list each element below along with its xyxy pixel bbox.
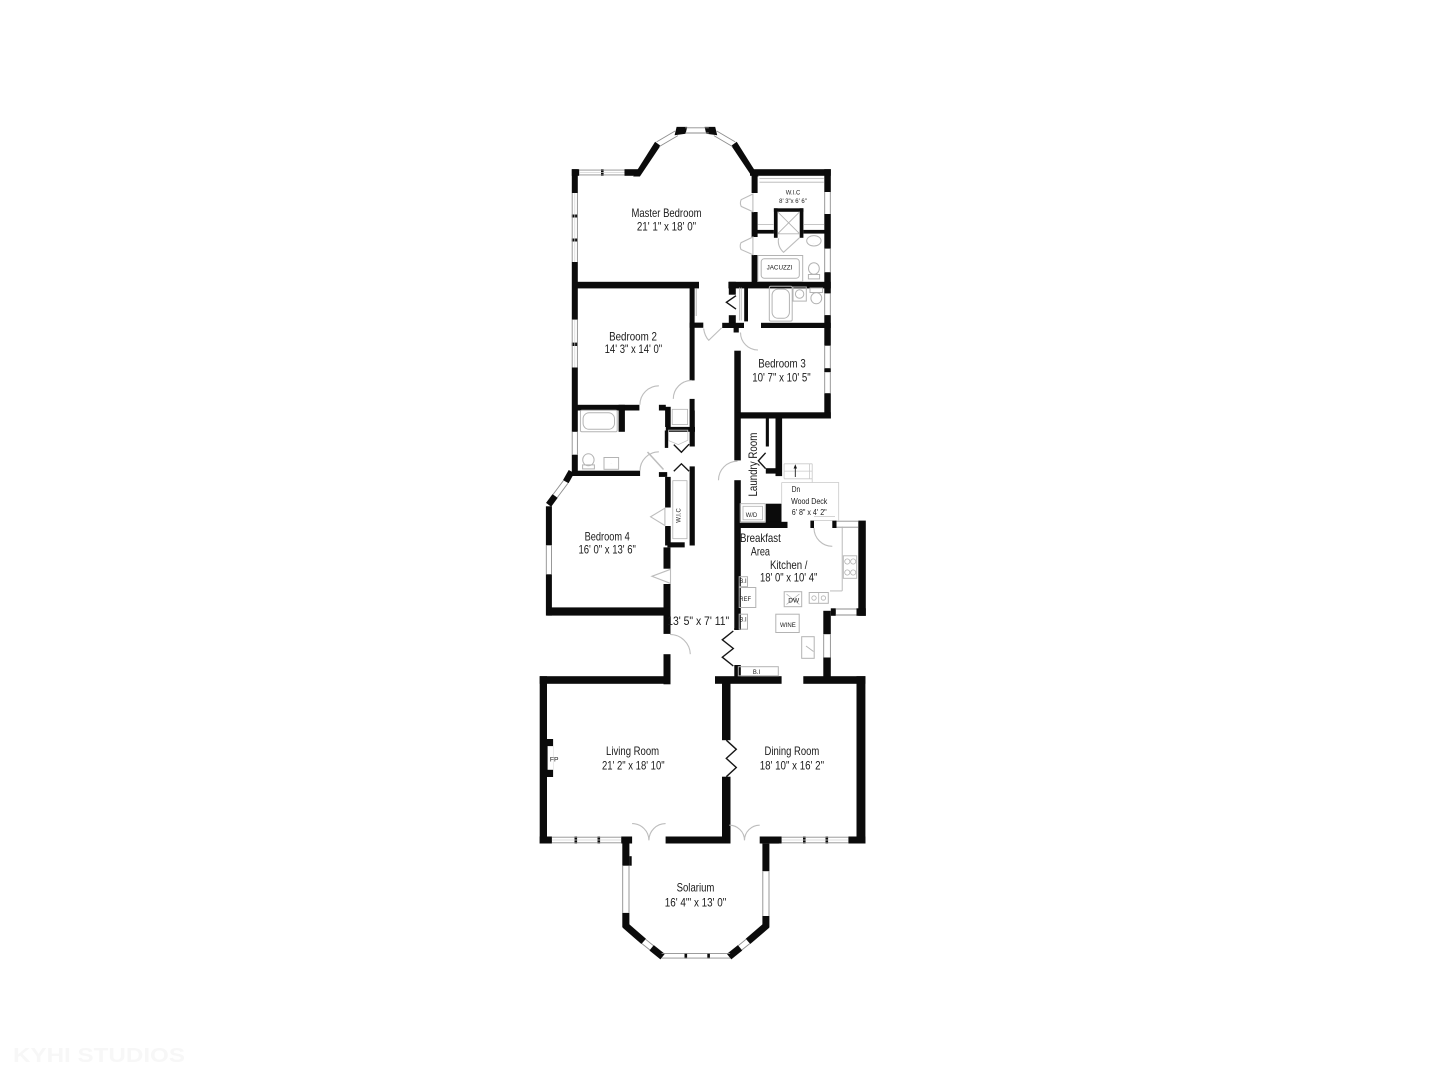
svg-text:10' 7" x 10' 5": 10' 7" x 10' 5" bbox=[752, 371, 811, 384]
svg-text:DW: DW bbox=[788, 598, 799, 605]
svg-text:B.I: B.I bbox=[739, 617, 746, 624]
svg-text:W/D: W/D bbox=[746, 512, 757, 519]
svg-text:14' 3" x 14' 0": 14' 3" x 14' 0" bbox=[605, 343, 663, 356]
svg-text:Dn: Dn bbox=[792, 484, 801, 494]
svg-text:18' 10" x 16' 2": 18' 10" x 16' 2" bbox=[760, 759, 824, 772]
svg-text:Area: Area bbox=[751, 546, 771, 559]
svg-text:Laundry Room: Laundry Room bbox=[747, 433, 760, 497]
svg-text:16' 4"' x 13' 0": 16' 4"' x 13' 0" bbox=[665, 896, 726, 909]
svg-text:FP: FP bbox=[550, 756, 559, 763]
svg-text:13' 5" x 7' 11": 13' 5" x 7' 11" bbox=[667, 615, 729, 628]
svg-text:Living Room: Living Room bbox=[606, 745, 659, 758]
svg-text:KYHI STUDIOS: KYHI STUDIOS bbox=[13, 1045, 185, 1067]
svg-text:B.I: B.I bbox=[753, 669, 760, 676]
svg-text:JACUZZI: JACUZZI bbox=[767, 264, 793, 271]
svg-text:Wood Deck: Wood Deck bbox=[791, 496, 828, 506]
svg-text:21' 1" x 18' 0": 21' 1" x 18' 0" bbox=[637, 221, 696, 234]
svg-text:Bedroom 2: Bedroom 2 bbox=[609, 330, 657, 343]
svg-text:Solarium: Solarium bbox=[677, 882, 715, 895]
svg-text:REF: REF bbox=[739, 596, 751, 603]
svg-text:Bedroom 4: Bedroom 4 bbox=[585, 530, 631, 543]
svg-text:16' 0" x 13' 6": 16' 0" x 13' 6" bbox=[578, 544, 636, 557]
svg-text:6' 8" x 4' 2": 6' 8" x 4' 2" bbox=[792, 507, 827, 517]
svg-text:W.I.C: W.I.C bbox=[786, 189, 801, 196]
svg-text:B.I: B.I bbox=[739, 578, 746, 585]
svg-text:18' 0" x 10' 4": 18' 0" x 10' 4" bbox=[760, 572, 818, 585]
svg-text:WINE: WINE bbox=[780, 622, 796, 629]
svg-text:Kitchen /: Kitchen / bbox=[770, 559, 808, 572]
svg-text:W.I.C: W.I.C bbox=[676, 508, 683, 523]
svg-text:21' 2" x 18' 10": 21' 2" x 18' 10" bbox=[602, 759, 665, 772]
svg-text:8' 3"x 6' 6": 8' 3"x 6' 6" bbox=[779, 198, 807, 205]
svg-text:Breakfast: Breakfast bbox=[740, 532, 781, 545]
svg-text:Dining Room: Dining Room bbox=[765, 745, 820, 758]
svg-text:Bedroom 3: Bedroom 3 bbox=[758, 357, 806, 370]
svg-text:Master Bedroom: Master Bedroom bbox=[632, 207, 702, 220]
